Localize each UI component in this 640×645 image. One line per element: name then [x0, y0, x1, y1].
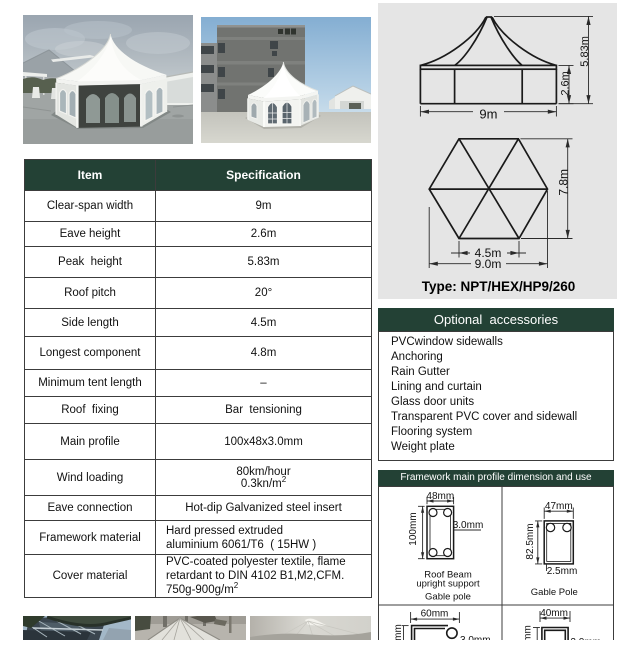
svg-text:3.0mm: 3.0mm: [453, 520, 484, 531]
svg-text:2.5mm: 2.5mm: [547, 566, 578, 577]
svg-text:48mm: 48mm: [426, 491, 454, 502]
svg-text:9.0m: 9.0m: [475, 257, 502, 271]
svg-text:2.6m: 2.6m: [560, 71, 572, 95]
svg-text:9m: 9m: [479, 106, 497, 121]
svg-text:mm: mm: [523, 625, 534, 640]
svg-text:40mm: 40mm: [540, 608, 568, 619]
svg-text:mm: mm: [393, 624, 404, 640]
svg-text:100mm: 100mm: [408, 512, 419, 545]
svg-text:upright support: upright support: [416, 579, 480, 590]
svg-text:5.83m: 5.83m: [579, 36, 591, 67]
svg-text:Type: NPT/HEX/HP9/260: Type: NPT/HEX/HP9/260: [422, 279, 576, 294]
svg-text:Gable pole: Gable pole: [425, 592, 471, 603]
svg-text:47mm: 47mm: [545, 501, 573, 512]
svg-text:60mm: 60mm: [421, 609, 449, 620]
svg-text:Gable Pole: Gable Pole: [531, 587, 578, 598]
svg-text:3.0mm: 3.0mm: [460, 635, 491, 640]
svg-text:7.8m: 7.8m: [557, 169, 571, 196]
svg-text:82.5mm: 82.5mm: [525, 523, 536, 559]
